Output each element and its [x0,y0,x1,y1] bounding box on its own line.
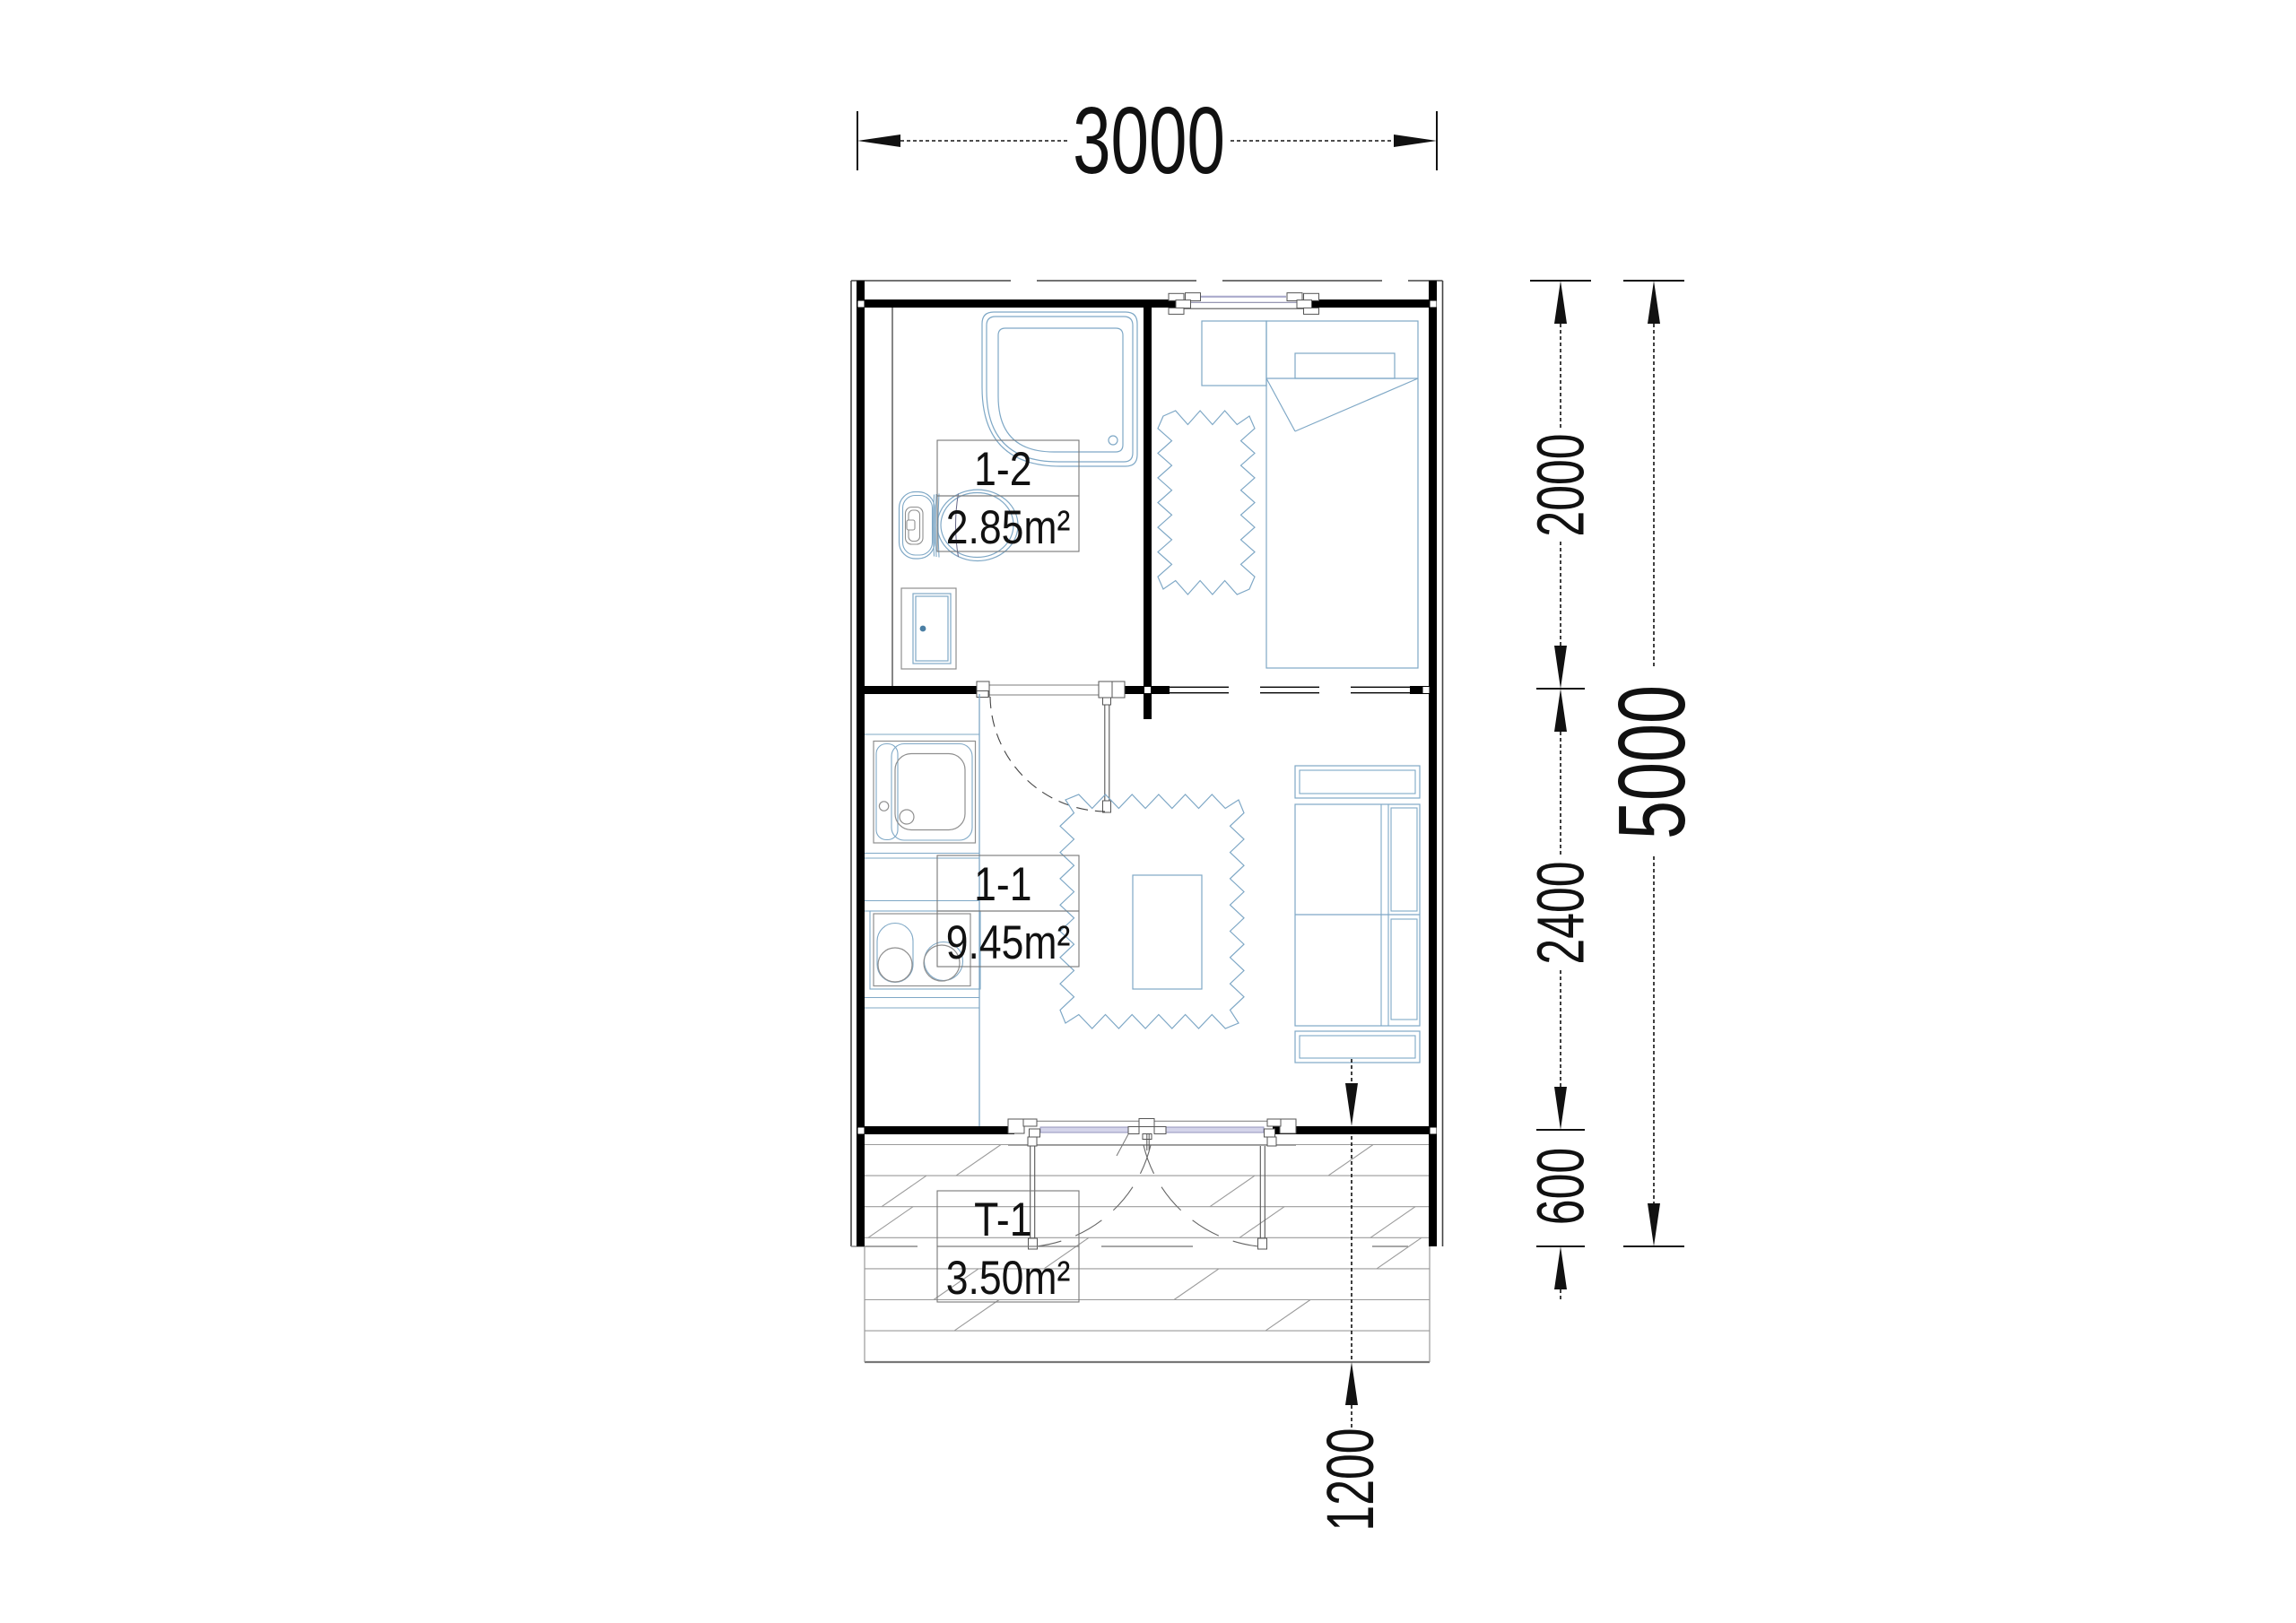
svg-text:9.45m²: 9.45m² [946,916,1071,968]
svg-text:2000: 2000 [1523,433,1597,536]
svg-text:2.85m²: 2.85m² [946,501,1071,553]
svg-text:1-2: 1-2 [974,443,1031,495]
svg-text:3.50m²: 3.50m² [946,1252,1071,1304]
svg-text:600: 600 [1523,1148,1597,1225]
svg-text:T-1: T-1 [974,1193,1031,1245]
svg-text:3000: 3000 [1073,87,1225,194]
svg-text:5000: 5000 [1598,685,1705,839]
svg-text:1-1: 1-1 [974,858,1031,910]
svg-text:1200: 1200 [1313,1428,1387,1531]
svg-text:2400: 2400 [1523,861,1597,964]
